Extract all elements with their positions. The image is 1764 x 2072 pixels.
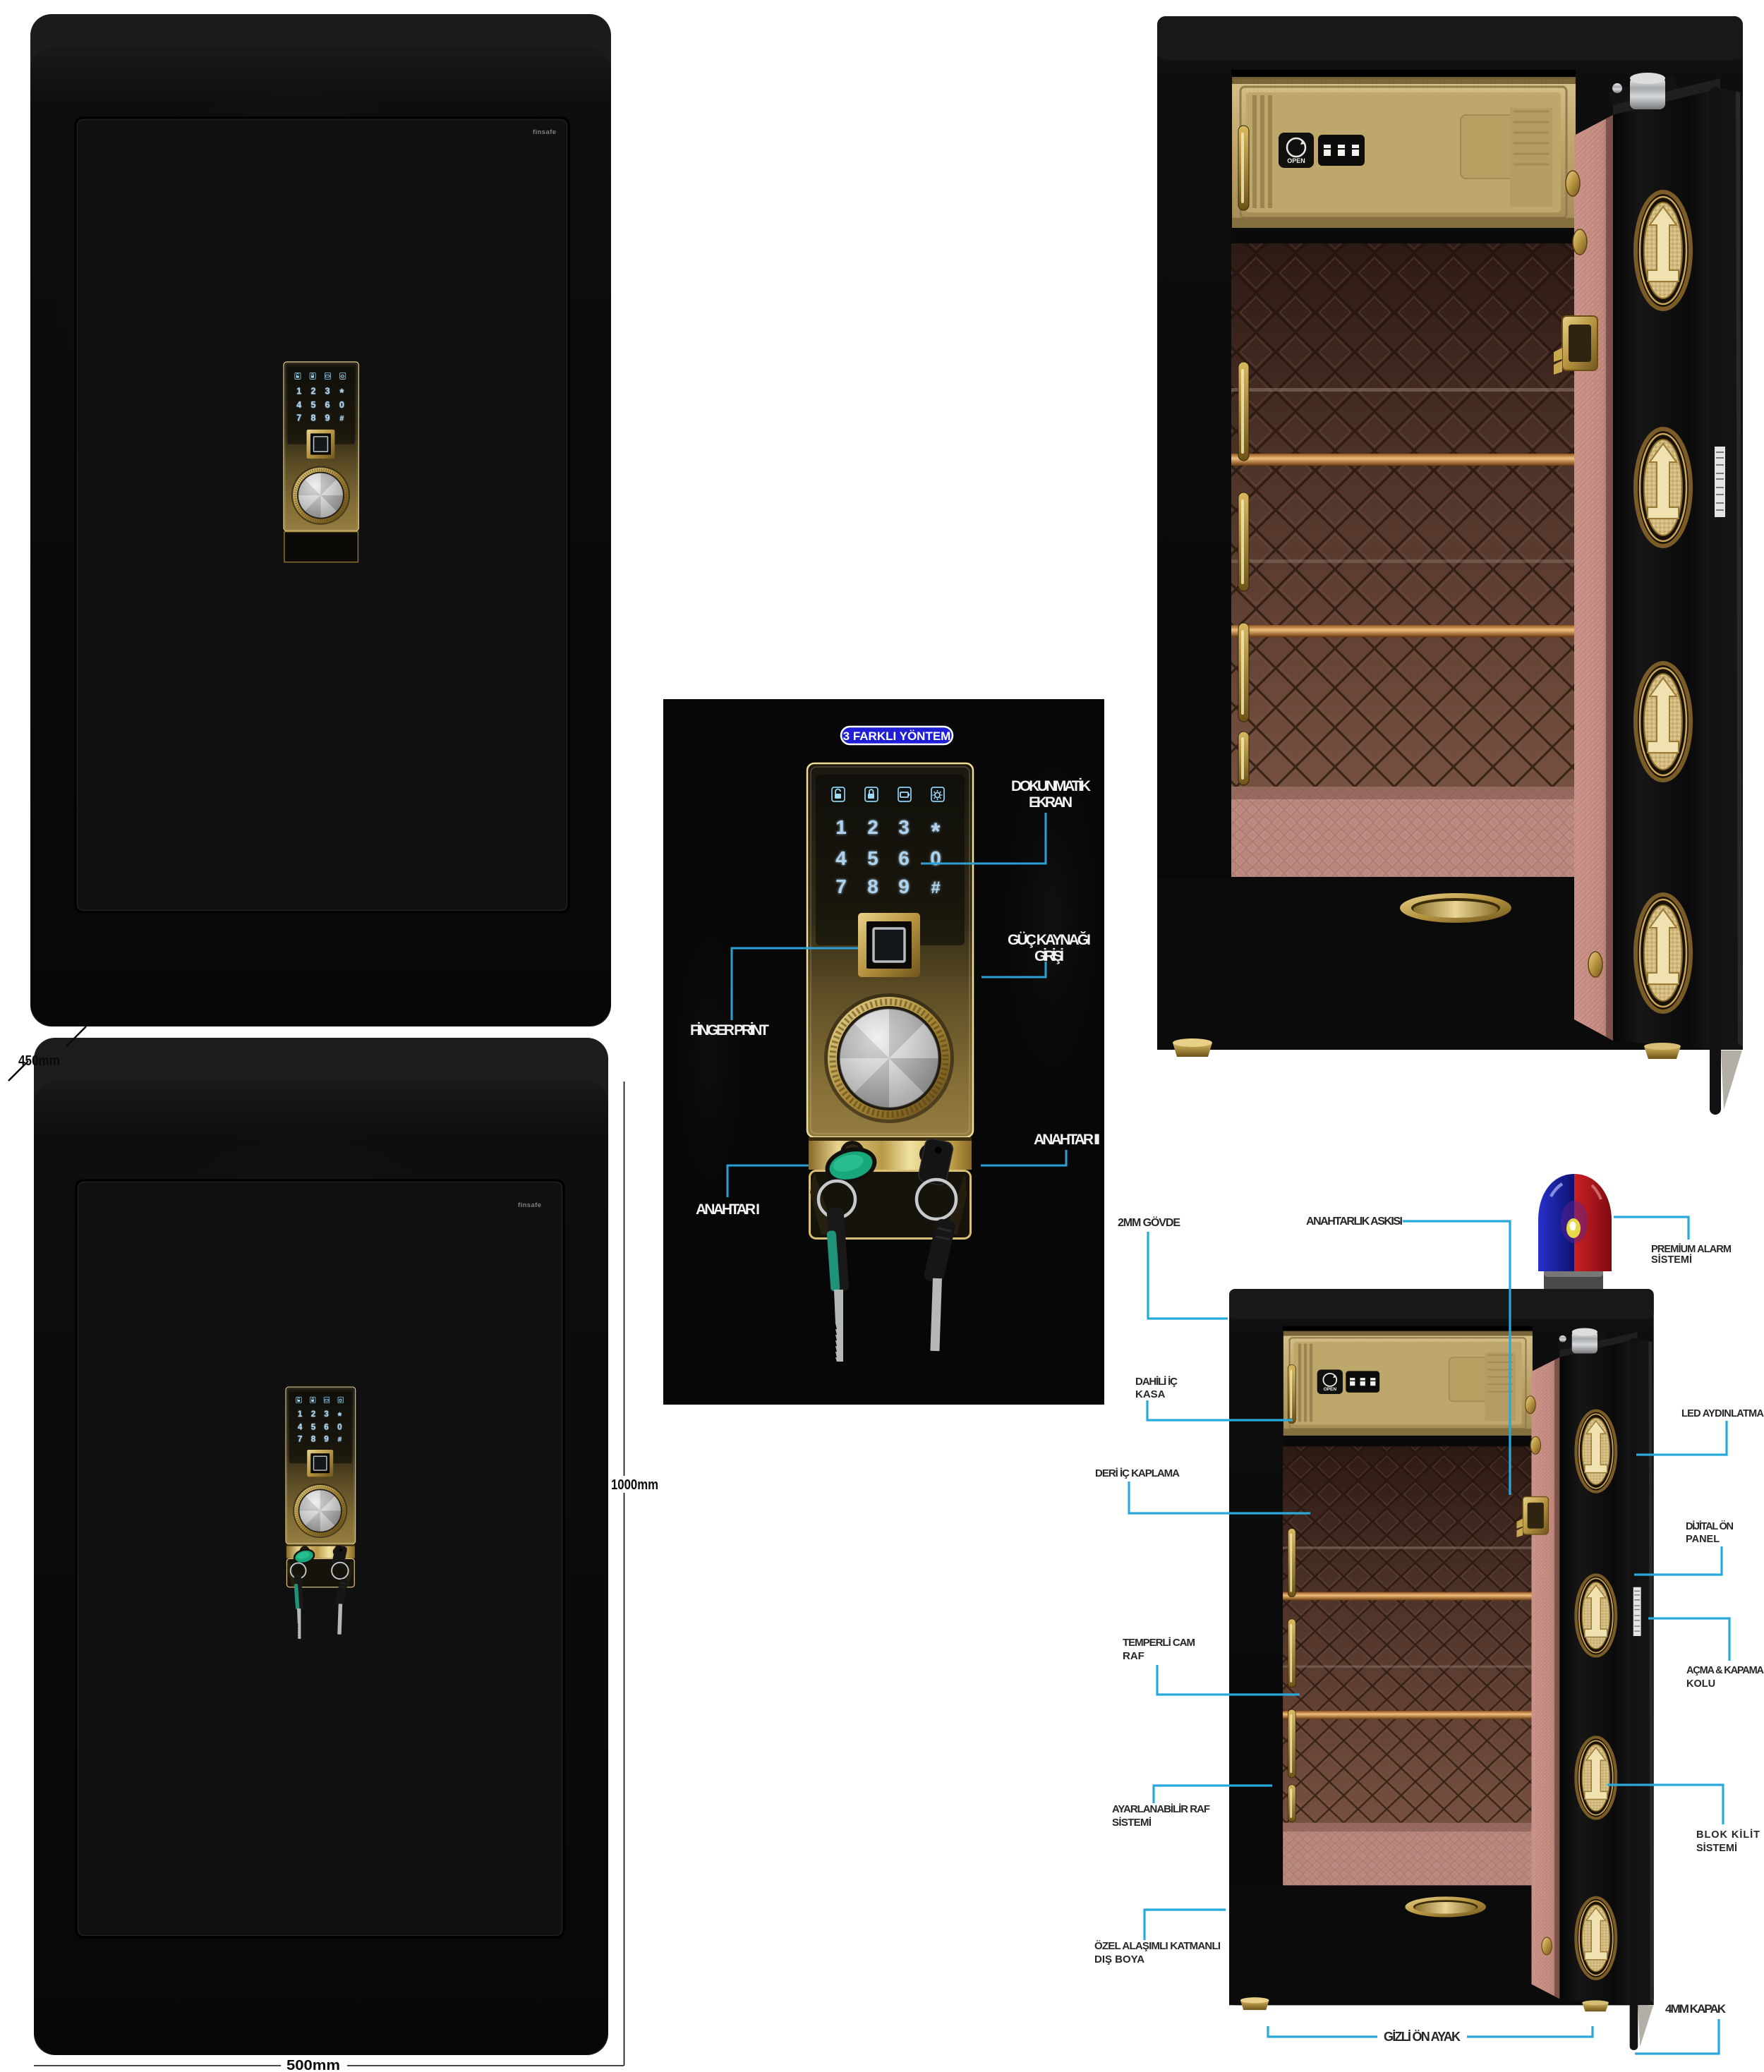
svg-text:PANEL: PANEL: [1686, 1534, 1720, 1545]
svg-text:TEMPERLİ CAM: TEMPERLİ CAM: [1123, 1637, 1195, 1649]
svg-text:KASA: KASA: [1135, 1388, 1166, 1400]
svg-text:DERİ İÇ KAPLAMA: DERİ İÇ KAPLAMA: [1095, 1467, 1180, 1479]
svg-text:DAHİLİ İÇ: DAHİLİ İÇ: [1135, 1376, 1178, 1388]
svg-text:FİNGER PRİNT: FİNGER PRİNT: [690, 1022, 769, 1038]
svg-text:AÇMA & KAPAMA: AÇMA & KAPAMA: [1686, 1665, 1764, 1676]
svg-text:SİSTEMİ: SİSTEMİ: [1651, 1254, 1692, 1266]
svg-text:finsafe: finsafe: [518, 1201, 541, 1209]
svg-text:GÜÇ KAYNAĞI: GÜÇ KAYNAĞI: [1008, 931, 1091, 948]
svg-text:1000mm: 1000mm: [611, 1477, 658, 1493]
svg-text:GİZLİ ÖN AYAK: GİZLİ ÖN AYAK: [1384, 2030, 1461, 2044]
svg-text:450mm: 450mm: [18, 1053, 60, 1069]
svg-text:ÖZEL ALAŞIMLI KATMANLI: ÖZEL ALAŞIMLI KATMANLI: [1094, 1940, 1221, 1952]
svg-text:AYARLANABİLİR RAF: AYARLANABİLİR RAF: [1112, 1803, 1210, 1815]
svg-text:4MM KAPAK: 4MM KAPAK: [1665, 2002, 1727, 2016]
svg-text:ANAHTAR II: ANAHTAR II: [1034, 1132, 1100, 1148]
svg-text:DOKUNMATİK: DOKUNMATİK: [1011, 778, 1091, 794]
svg-text:finsafe: finsafe: [533, 128, 556, 136]
svg-text:EKRAN: EKRAN: [1029, 794, 1073, 811]
svg-text:PREMİUM ALARM: PREMİUM ALARM: [1651, 1243, 1732, 1255]
svg-text:ANAHTAR I: ANAHTAR I: [696, 1201, 760, 1218]
svg-text:3 FARKLI YÖNTEM: 3 FARKLI YÖNTEM: [843, 729, 951, 743]
svg-text:BLOK KİLİT: BLOK KİLİT: [1696, 1829, 1760, 1841]
svg-text:DIŞ BOYA: DIŞ BOYA: [1094, 1953, 1144, 1965]
svg-text:RAF: RAF: [1123, 1650, 1144, 1662]
svg-text:500mm: 500mm: [286, 2058, 340, 2072]
svg-text:DİJİTAL ÖN: DİJİTAL ÖN: [1686, 1520, 1734, 1532]
svg-text:SİSTEMİ: SİSTEMİ: [1112, 1817, 1152, 1829]
svg-text:GİRİŞİ: GİRİŞİ: [1034, 948, 1064, 964]
svg-text:ANAHTARLIK ASKISI: ANAHTARLIK ASKISI: [1306, 1216, 1403, 1228]
svg-text:2MM GÖVDE: 2MM GÖVDE: [1118, 1216, 1180, 1229]
svg-text:LED AYDINLATMA: LED AYDINLATMA: [1681, 1408, 1764, 1419]
svg-text:KOLU: KOLU: [1686, 1678, 1715, 1690]
svg-text:SİSTEMİ: SİSTEMİ: [1696, 1842, 1737, 1854]
